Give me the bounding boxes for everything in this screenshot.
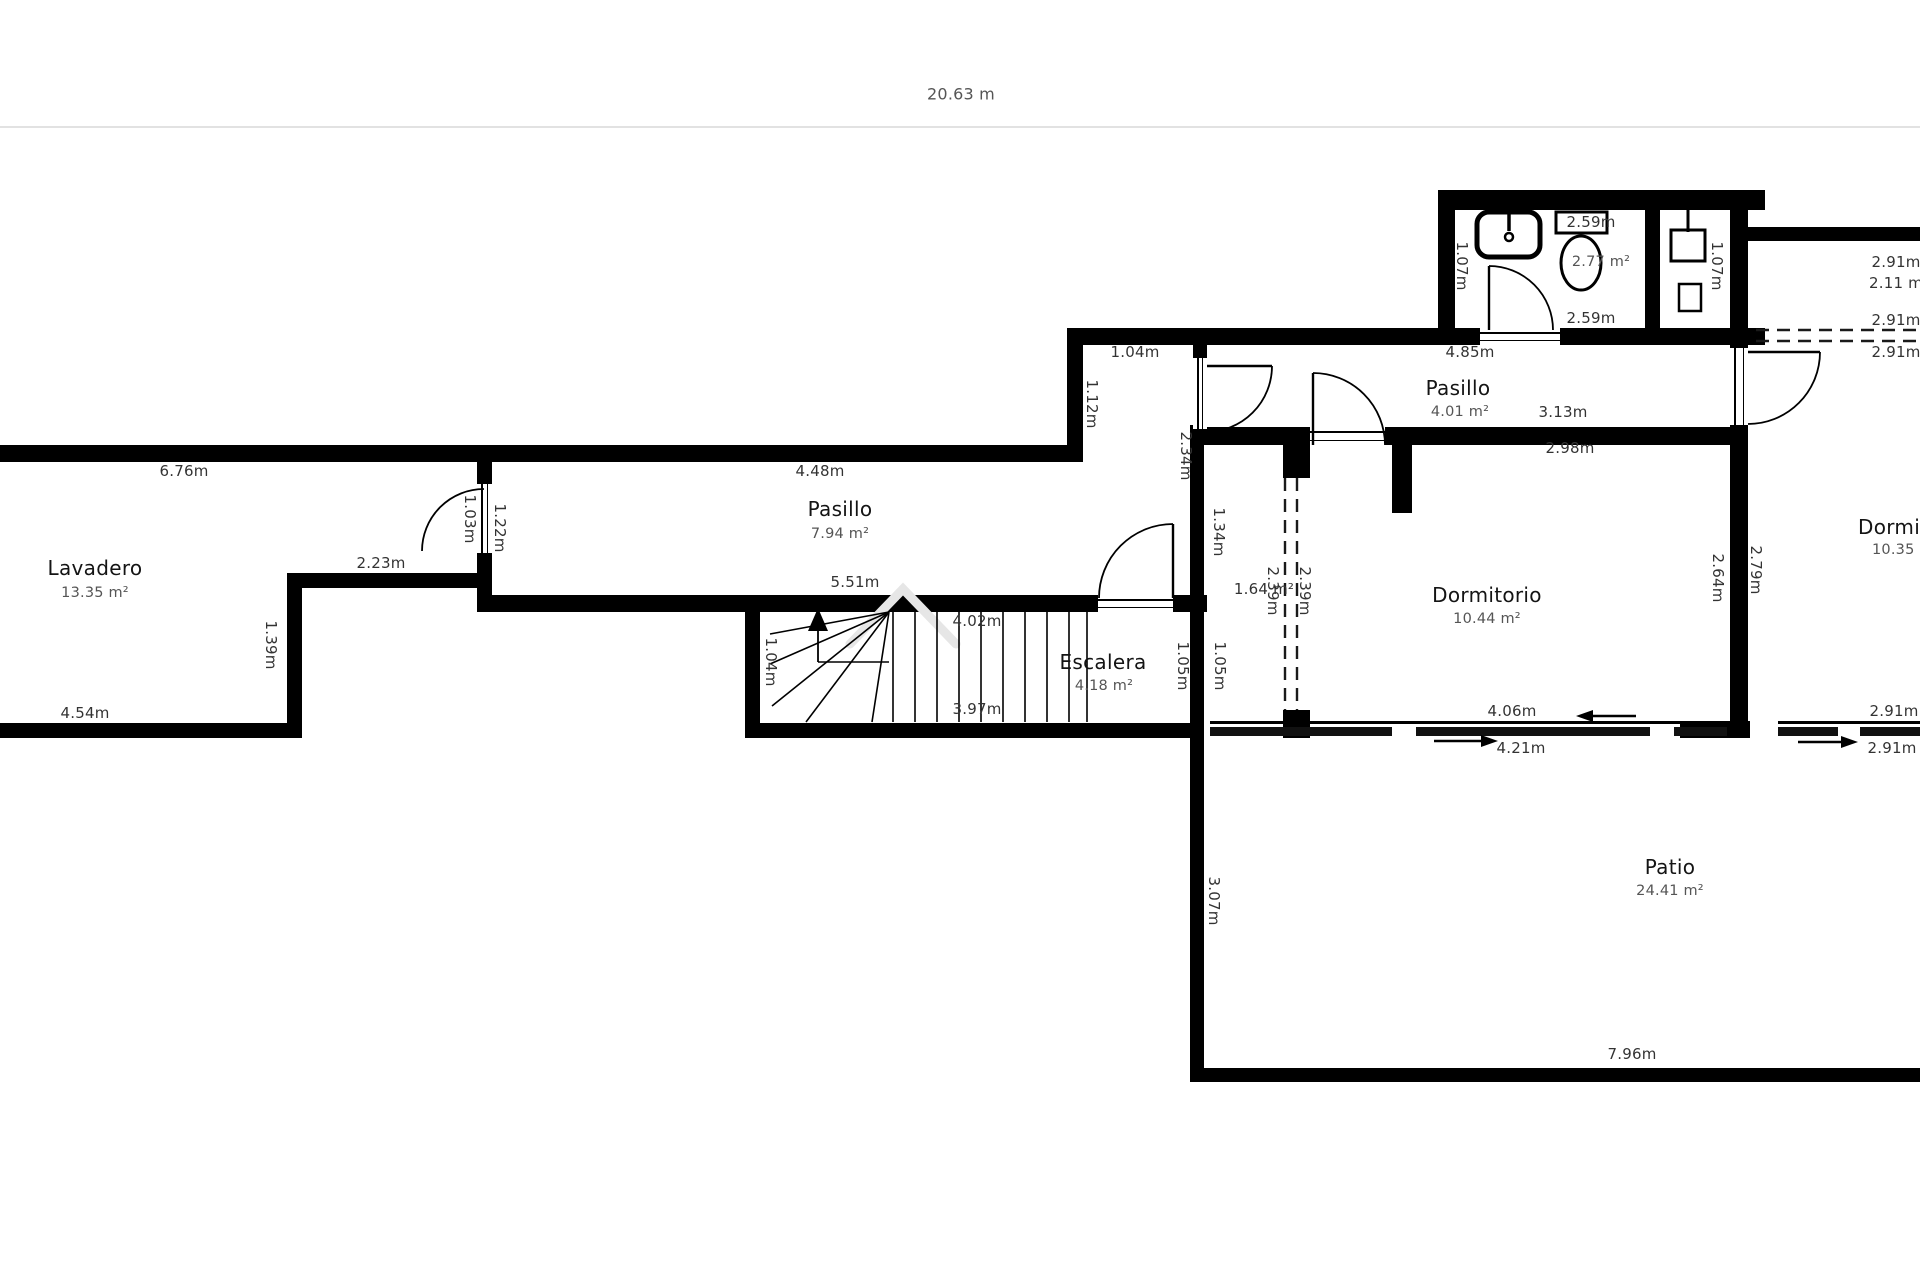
dimension-label: 2.39m	[1264, 566, 1282, 615]
dimension-label: 1.04m	[762, 637, 780, 686]
room-name-label: Pasillo	[808, 497, 873, 521]
dimension-label: 2.11 m²	[1869, 274, 1920, 292]
dimension-label: 2.91m	[1871, 311, 1920, 329]
room-name-label: Dormitorio	[1858, 515, 1920, 539]
room-name-label: Lavadero	[48, 556, 143, 580]
dimension-label: 2.91m	[1867, 739, 1916, 757]
dimension-label: 2.91m	[1869, 702, 1918, 720]
dimension-label: 2.64m	[1709, 553, 1727, 602]
labels-layer: 6.76mLavadero13.35 m²4.54m2.23m1.03m1.22…	[0, 0, 1920, 1280]
dimension-label: 2.98m	[1545, 439, 1594, 457]
dimension-label: 1.07m	[1708, 241, 1726, 290]
room-area-label: 4.18 m²	[1075, 678, 1133, 694]
dimension-label: 1.04m	[1110, 343, 1159, 361]
dimension-label: 2.91m	[1871, 253, 1920, 271]
dimension-label: 4.02m	[952, 612, 1001, 630]
dimension-label: 1.07m	[1453, 241, 1471, 290]
dimension-label: 6.76m	[159, 462, 208, 480]
room-area-label: 7.94 m²	[811, 526, 869, 542]
dimension-label: 2.39m	[1296, 566, 1314, 615]
room-area-label: 13.35 m²	[61, 585, 129, 601]
dimension-label: 1.05m	[1174, 641, 1192, 690]
floorplan-canvas[interactable]: 20.63 m 6.76mLavadero13.35 m²4.54m2.23m1…	[0, 0, 1920, 1280]
dimension-label: 1.05m	[1211, 641, 1229, 690]
room-name-label: Pasillo	[1426, 376, 1491, 400]
dimension-label: 2.59m	[1566, 213, 1615, 231]
dimension-label: 1.22m	[491, 503, 509, 552]
dimension-label: 1.12m	[1083, 379, 1101, 428]
room-name-label: Escalera	[1059, 650, 1146, 674]
dimension-label: 4.54m	[60, 704, 109, 722]
dimension-label: 4.48m	[795, 462, 844, 480]
dimension-label: 3.07m	[1205, 876, 1223, 925]
dimension-label: 1.34m	[1210, 507, 1228, 556]
dimension-label: 2.59m	[1566, 309, 1615, 327]
room-area-label: 2.77 m²	[1572, 254, 1630, 270]
dimension-label: 3.97m	[952, 700, 1001, 718]
room-area-label: 10.35 m²	[1872, 542, 1920, 558]
room-name-label: Patio	[1645, 855, 1696, 879]
room-area-label: 24.41 m²	[1636, 883, 1704, 899]
dimension-label: 4.06m	[1487, 702, 1536, 720]
dimension-label: 1.39m	[262, 620, 280, 669]
dimension-label: 1.03m	[461, 494, 479, 543]
dimension-label: 5.51m	[830, 573, 879, 591]
dimension-label: 2.79m	[1747, 545, 1765, 594]
dimension-label: 4.85m	[1445, 343, 1494, 361]
room-area-label: 10.44 m²	[1453, 611, 1521, 627]
room-area-label: 4.01 m²	[1431, 404, 1489, 420]
dimension-label: 2.23m	[356, 554, 405, 572]
dimension-label: 2.34m	[1177, 431, 1195, 480]
dimension-label: 3.13m	[1538, 403, 1587, 421]
dimension-label: 4.21m	[1496, 739, 1545, 757]
dimension-label: 7.96m	[1607, 1045, 1656, 1063]
dimension-label: 2.91m	[1871, 343, 1920, 361]
room-name-label: Dormitorio	[1432, 583, 1542, 607]
